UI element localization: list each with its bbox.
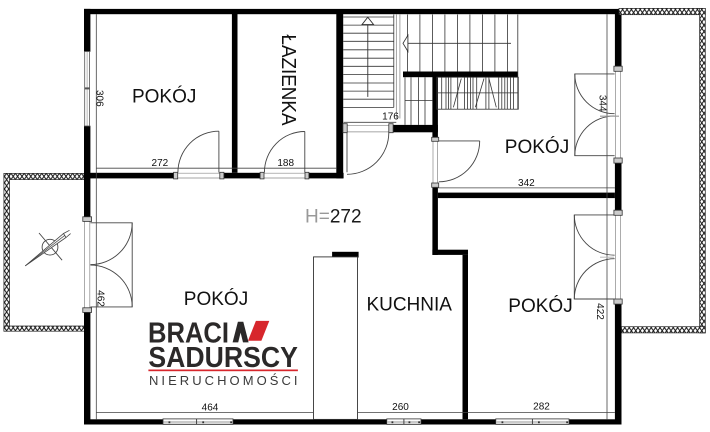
svg-text:188: 188	[277, 158, 294, 169]
svg-text:306: 306	[94, 90, 105, 107]
svg-text:POKÓJ: POKÓJ	[505, 136, 569, 158]
svg-text:POKÓJ: POKÓJ	[508, 295, 572, 317]
svg-text:342: 342	[518, 178, 535, 189]
svg-text:464: 464	[202, 403, 219, 414]
svg-text:344: 344	[596, 95, 607, 112]
svg-text:282: 282	[533, 402, 550, 413]
svg-text:POKÓJ: POKÓJ	[184, 288, 248, 310]
svg-text:462: 462	[94, 290, 105, 307]
svg-text:ŁAZIENKA: ŁAZIENKA	[277, 35, 299, 127]
svg-text:422: 422	[594, 303, 605, 320]
svg-text:176: 176	[382, 112, 399, 123]
svg-text:KUCHNIA: KUCHNIA	[366, 295, 452, 316]
svg-text:SADURSCY: SADURSCY	[148, 342, 298, 374]
svg-text:272: 272	[152, 158, 169, 169]
svg-text:H=272: H=272	[305, 206, 362, 227]
svg-text:POKÓJ: POKÓJ	[132, 85, 196, 107]
svg-text:NIERUCHOMOŚCI: NIERUCHOMOŚCI	[149, 373, 298, 388]
svg-text:260: 260	[392, 402, 409, 413]
